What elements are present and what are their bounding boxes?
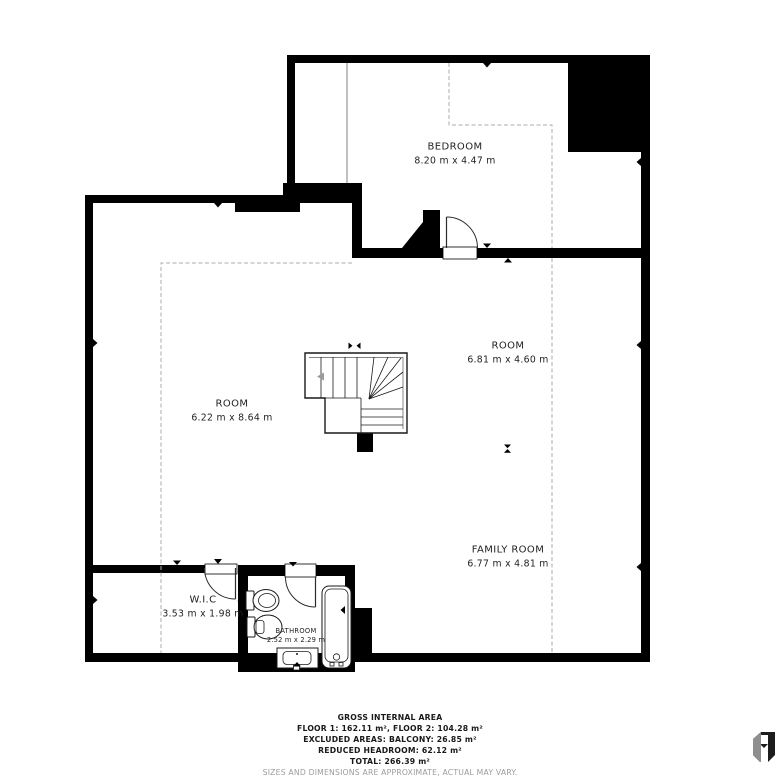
area-reduced-headroom: REDUCED HEADROOM: 62.12 m²: [263, 745, 518, 756]
wall-marker: [93, 339, 98, 347]
wall-angled-wedge: [402, 210, 440, 248]
wall-marker: [637, 158, 642, 166]
wall-bedroom-bottom: [352, 248, 650, 258]
floorplan-drawing: [0, 0, 780, 780]
room-name: ROOM: [467, 340, 548, 354]
room-label-bathroom: BATHROOM 2.52 m x 2.29 m: [267, 627, 325, 645]
measure-marker-vertical-icon: [504, 445, 511, 449]
staircase-outline: [305, 353, 407, 433]
area-summary: GROSS INTERNAL AREA FLOOR 1: 162.11 m², …: [263, 712, 518, 778]
room-name: BEDROOM: [414, 141, 495, 155]
bedroom-door-threshold: [443, 247, 477, 259]
wall-bathroom-notch: [355, 608, 372, 655]
wall-marker: [637, 341, 642, 349]
area-excluded: EXCLUDED AREAS: BALCONY: 26.85 m²: [263, 734, 518, 745]
room-dimensions: 6.77 m x 4.81 m: [467, 557, 548, 571]
wall-marker: [93, 596, 98, 604]
room-label-bedroom: BEDROOM 8.20 m x 4.47 m: [414, 141, 495, 168]
wall-marker: [173, 561, 181, 566]
room-label-room-right: ROOM 6.81 m x 4.60 m: [467, 340, 548, 367]
wall-marker: [504, 258, 512, 263]
wall-marker: [637, 563, 642, 571]
wall-top-right-block: [568, 55, 650, 152]
area-summary-title: GROSS INTERNAL AREA: [263, 712, 518, 723]
bathtub-icon: [322, 586, 351, 668]
bedroom-door-swing-arc: [447, 217, 478, 248]
room-name: ROOM: [191, 398, 272, 412]
room-dimensions: 3.53 m x 1.98 m: [162, 607, 243, 621]
room-dimensions: 2.52 m x 2.29 m: [267, 636, 325, 645]
wall-wic-top: [93, 565, 205, 573]
room-dimensions: 6.81 m x 4.60 m: [467, 353, 548, 367]
room-label-family-room: FAMILY ROOM 6.77 m x 4.81 m: [467, 544, 548, 571]
sink-vanity-icon: [277, 648, 318, 670]
room-name: W.I.C: [162, 594, 243, 608]
measure-marker-horizontal-icon: [357, 343, 361, 350]
room-dimensions: 8.20 m x 4.47 m: [414, 154, 495, 168]
room-label-room-left: ROOM 6.22 m x 8.64 m: [191, 398, 272, 425]
wall-marker: [483, 244, 491, 249]
disclaimer-text: SIZES AND DIMENSIONS ARE APPROXIMATE, AC…: [263, 767, 518, 778]
room-label-wic: W.I.C 3.53 m x 1.98 m: [162, 594, 243, 621]
wall-bedroom-left: [287, 55, 295, 203]
measure-marker-vertical-icon: [504, 449, 511, 453]
wall-marker: [214, 559, 222, 564]
wall-left: [85, 195, 93, 662]
staircase: [305, 353, 407, 433]
wall-marker: [214, 203, 222, 208]
matterport-logo-icon: [752, 731, 776, 768]
wall-stair-side: [352, 183, 362, 258]
room-dimensions: 6.22 m x 8.64 m: [191, 411, 272, 425]
wall-marker: [483, 63, 491, 68]
matterport-logo-glyph: [752, 731, 776, 764]
wic-door-threshold: [205, 564, 237, 574]
wall-junction-block: [235, 195, 300, 212]
bathroom-door-swing-arc: [286, 577, 316, 607]
area-floors: FLOOR 1: 162.11 m², FLOOR 2: 104.28 m²: [263, 723, 518, 734]
stair-wall-stub: [357, 431, 373, 452]
bathroom-door-threshold: [285, 564, 316, 577]
floorplan-page: BEDROOM 8.20 m x 4.47 m ROOM 6.81 m x 4.…: [0, 0, 780, 780]
room-name: BATHROOM: [267, 627, 325, 636]
toilet-icon: [246, 590, 279, 612]
area-total: TOTAL: 266.39 m²: [263, 756, 518, 767]
wall-right: [641, 55, 650, 662]
room-name: FAMILY ROOM: [467, 544, 548, 558]
measure-marker-horizontal-icon: [349, 343, 353, 350]
